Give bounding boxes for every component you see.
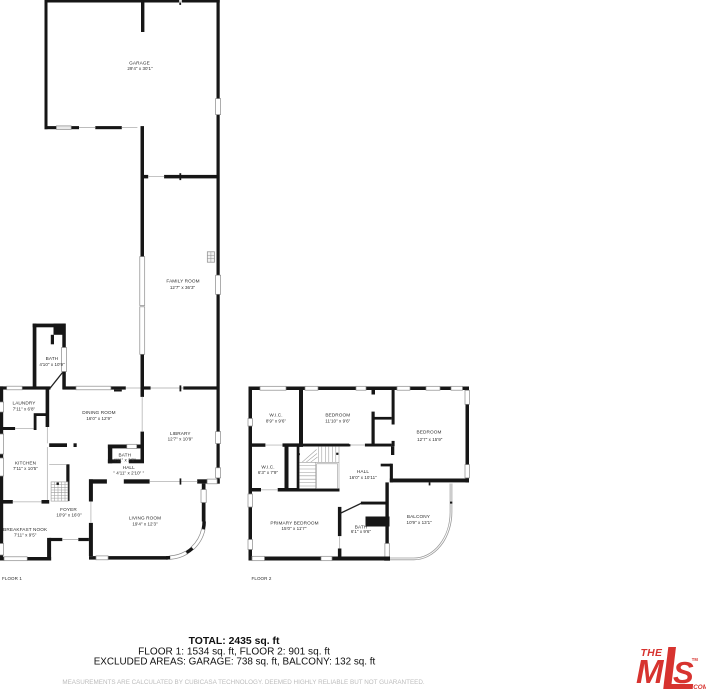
svg-text:HALL: HALL: [357, 469, 369, 474]
svg-text:" 4'11" x 2'10" ": " 4'11" x 2'10" ": [113, 470, 144, 475]
svg-text:12'7" x 36'3": 12'7" x 36'3": [170, 285, 196, 290]
svg-text:FOYER: FOYER: [60, 507, 77, 512]
svg-text:19'4" x 12'3": 19'4" x 12'3": [132, 521, 158, 526]
svg-text:W.I.C.: W.I.C.: [261, 465, 274, 470]
svg-text:W.I.C.: W.I.C.: [269, 413, 282, 418]
svg-text:DINING ROOM: DINING ROOM: [82, 410, 115, 415]
svg-text:KITCHEN: KITCHEN: [15, 461, 36, 466]
svg-text:M: M: [636, 653, 665, 689]
svg-text:16'0" x 12'9": 16'0" x 12'9": [86, 416, 112, 421]
svg-text:LAUNDRY: LAUNDRY: [12, 401, 36, 406]
svg-text:7'11" x 6'8": 7'11" x 6'8": [13, 407, 36, 412]
svg-text:6'1" x 9'6": 6'1" x 9'6": [351, 529, 372, 534]
svg-text:8'9" x 9'6": 8'9" x 9'6": [266, 419, 287, 424]
svg-text:12'7" x 15'9": 12'7" x 15'9": [417, 437, 443, 442]
svg-text:GARAGE: GARAGE: [129, 61, 150, 66]
svg-text:LIBRARY: LIBRARY: [170, 431, 191, 436]
svg-text:BALCONY: BALCONY: [407, 514, 431, 519]
svg-text:LIVING ROOM: LIVING ROOM: [129, 515, 161, 520]
svg-text:TOTAL: 2435 sq. ft: TOTAL: 2435 sq. ft: [189, 636, 280, 647]
svg-text:6'3" x 7'9": 6'3" x 7'9": [258, 470, 279, 475]
svg-text:16'0" x 10'11": 16'0" x 10'11": [349, 475, 377, 480]
svg-text:7'11" x 9'5": 7'11" x 9'5": [14, 532, 37, 537]
svg-text:BATH: BATH: [46, 356, 59, 361]
svg-text:FAMILY ROOM: FAMILY ROOM: [166, 279, 199, 284]
svg-text:BREAKFAST NOOK: BREAKFAST NOOK: [3, 527, 48, 532]
svg-text:4'10" x 10'9": 4'10" x 10'9": [39, 362, 65, 367]
svg-text:TM: TM: [692, 657, 699, 662]
svg-text:11'10" x 9'6": 11'10" x 9'6": [325, 419, 350, 424]
svg-text:FLOOR 1: FLOOR 1: [2, 576, 22, 581]
svg-text:15'0" x 11'7": 15'0" x 11'7": [282, 526, 307, 531]
svg-text:EXCLUDED AREAS: GARAGE: 738 sq: EXCLUDED AREAS: GARAGE: 738 sq. ft, BALC…: [94, 657, 376, 668]
svg-text:29'4" x 30'1": 29'4" x 30'1": [127, 66, 153, 71]
svg-text:BEDROOM: BEDROOM: [325, 413, 350, 418]
svg-text:10'9" x 16'0": 10'9" x 16'0": [56, 512, 82, 517]
svg-text:.COM: .COM: [692, 684, 706, 689]
svg-text:10'9" x 13'1": 10'9" x 13'1": [407, 520, 433, 525]
svg-text:4'11" x 2'8": 4'11" x 2'8": [113, 457, 136, 462]
svg-text:MEASUREMENTS ARE CALCULATED BY: MEASUREMENTS ARE CALCULATED BY CUBICASA …: [62, 679, 425, 686]
svg-text:BEDROOM: BEDROOM: [417, 430, 442, 435]
svg-text:7'11" x 10'5": 7'11" x 10'5": [13, 466, 38, 471]
svg-text:FLOOR 2: FLOOR 2: [252, 576, 272, 581]
svg-text:12'7" x 10'9": 12'7" x 10'9": [168, 437, 194, 442]
